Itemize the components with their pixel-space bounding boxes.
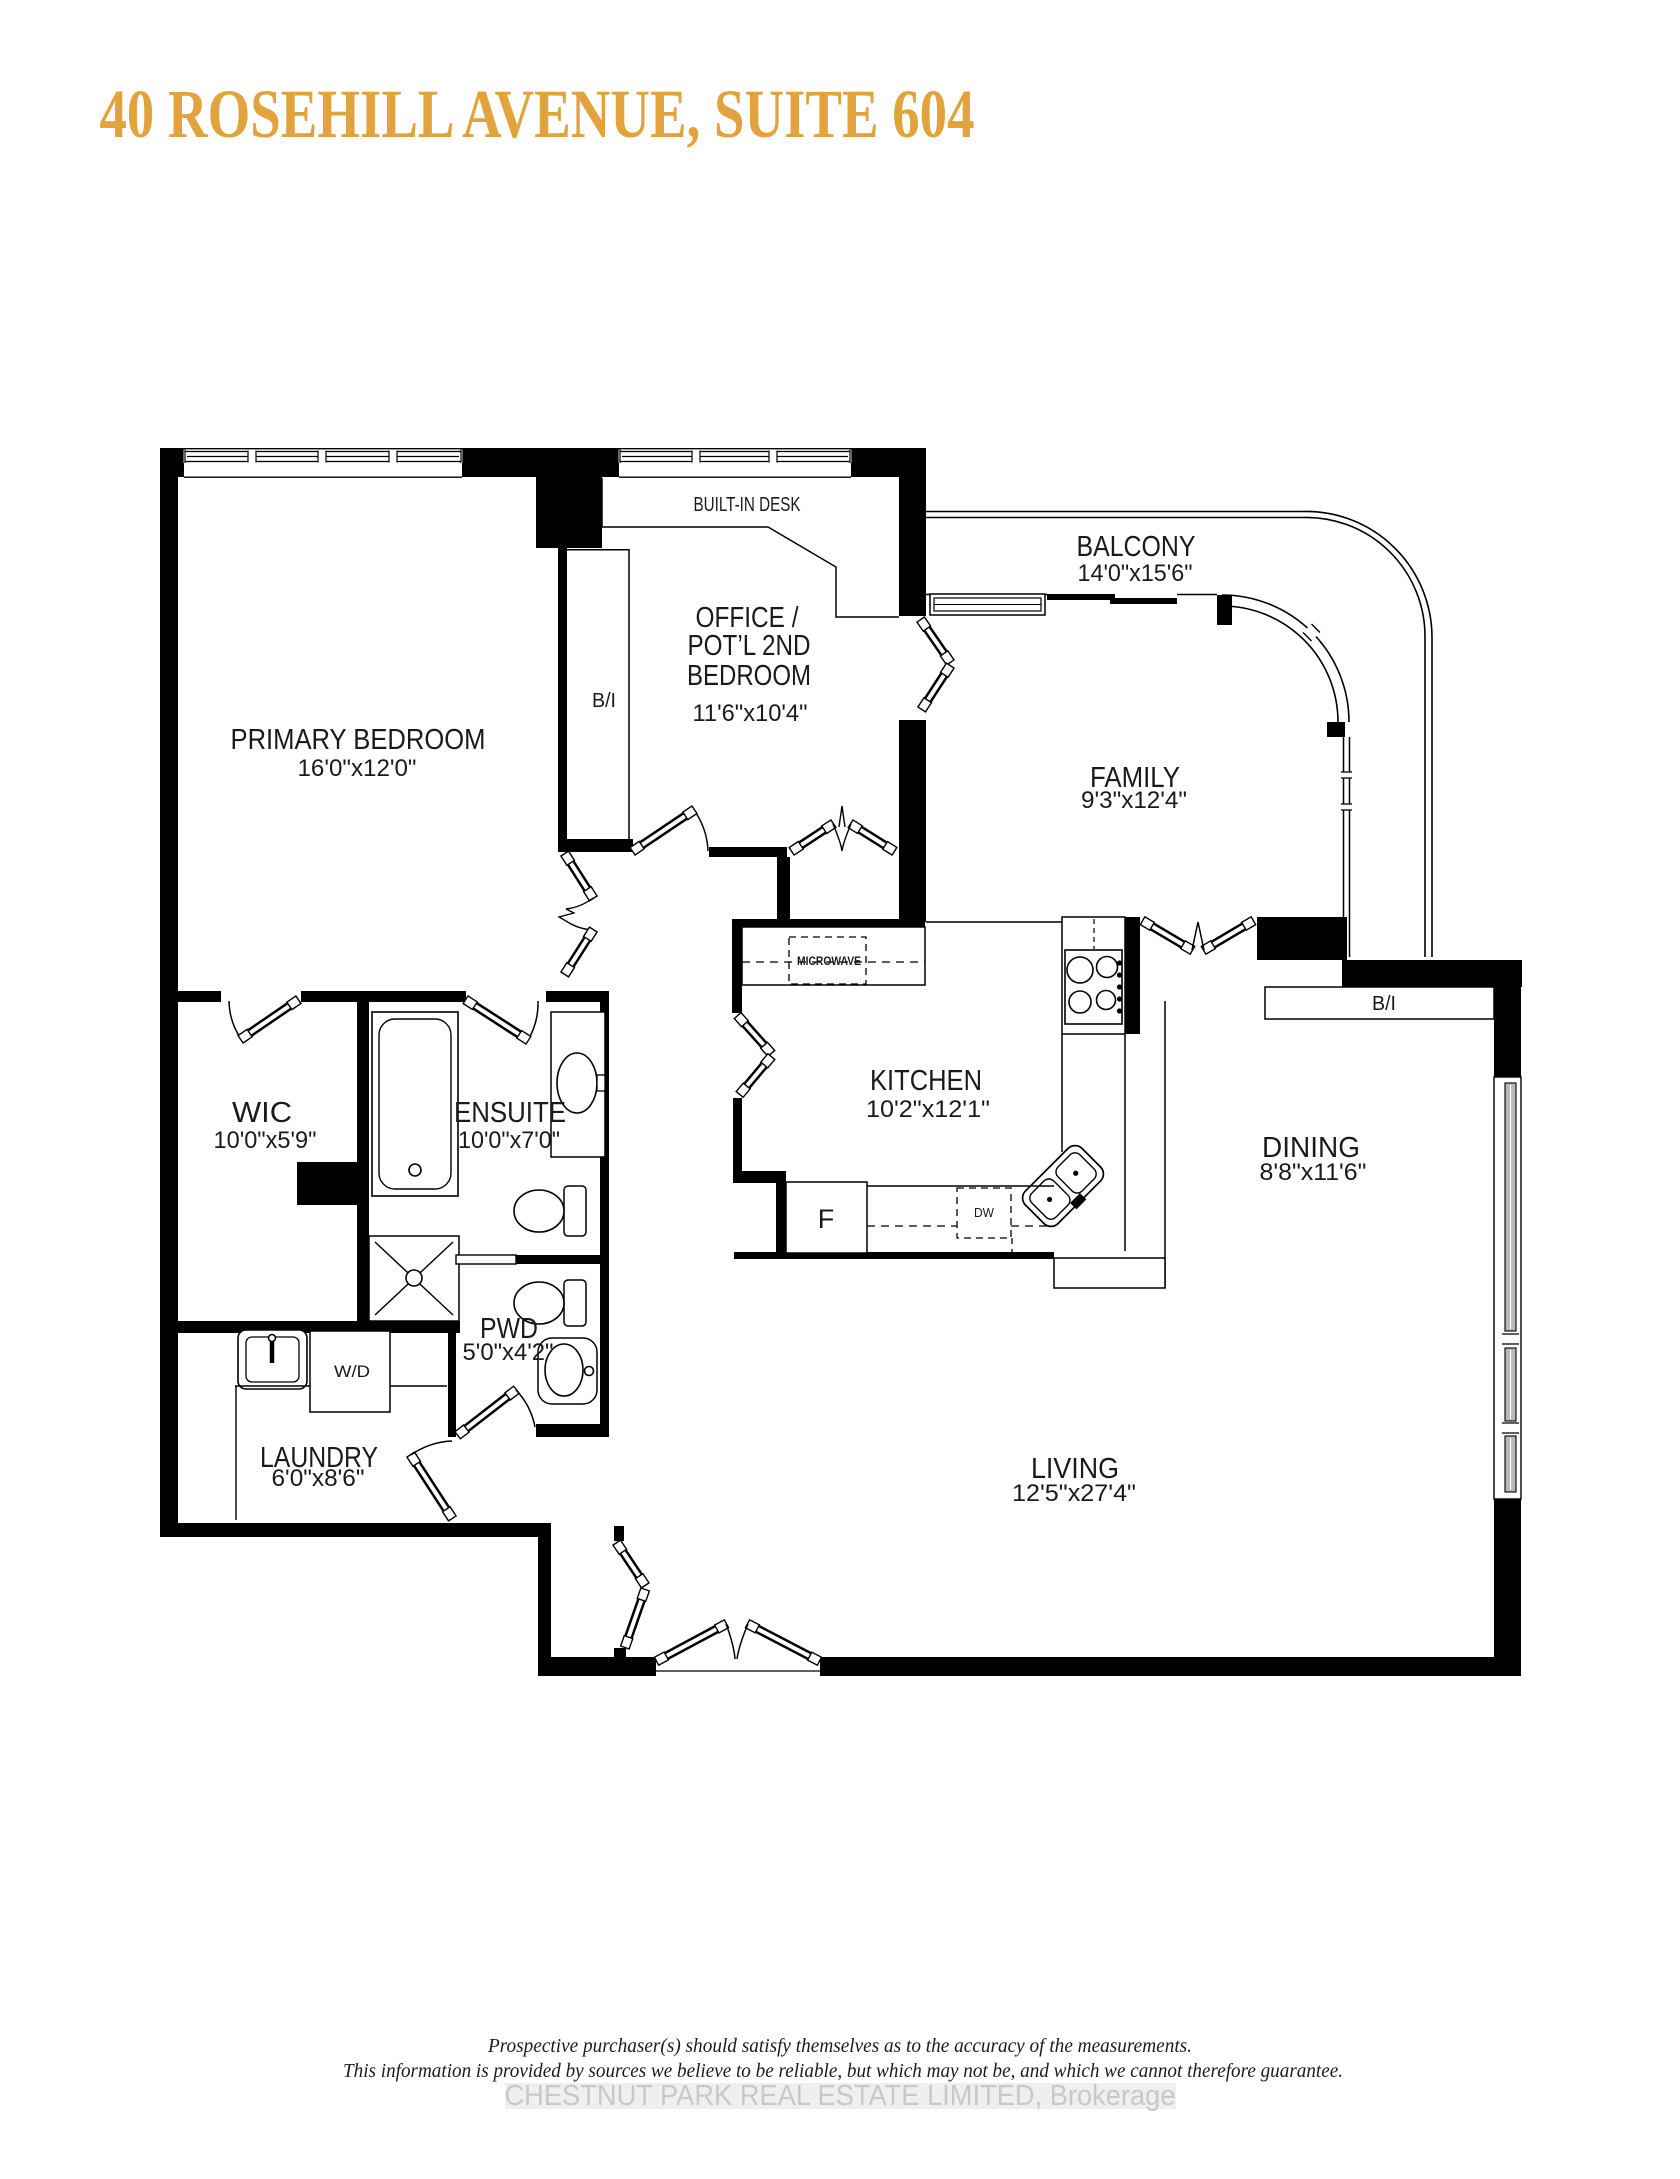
svg-text:W/D: W/D (334, 1362, 370, 1381)
svg-text:ENSUITE: ENSUITE (454, 1097, 566, 1129)
svg-text:6'0"x8'6": 6'0"x8'6" (272, 1465, 365, 1492)
svg-text:BEDROOM: BEDROOM (687, 660, 811, 692)
svg-text:CHESTNUT PARK REAL ESTATE LIMI: CHESTNUT PARK REAL ESTATE LIMITED, Broke… (505, 2080, 1176, 2112)
svg-text:B/I: B/I (592, 690, 616, 712)
svg-text:8'8"x11'6": 8'8"x11'6" (1260, 1159, 1367, 1186)
svg-text:9'3"x12'4": 9'3"x12'4" (1081, 787, 1187, 814)
svg-text:This information is provided b: This information is provided by sources … (343, 2061, 1343, 2082)
svg-text:WIC: WIC (232, 1097, 292, 1129)
svg-text:10'0"x7'0": 10'0"x7'0" (458, 1127, 560, 1154)
svg-text:F: F (818, 1204, 835, 1234)
svg-text:POT’L 2ND: POT’L 2ND (688, 630, 811, 662)
svg-text:Prospective purchaser(s) shoul: Prospective purchaser(s) should satisfy … (487, 2036, 1192, 2057)
svg-text:BUILT-IN DESK: BUILT-IN DESK (694, 494, 801, 516)
svg-text:14'0"x15'6": 14'0"x15'6" (1078, 560, 1193, 587)
svg-text:5'0"x4'2": 5'0"x4'2" (463, 1339, 554, 1366)
svg-text:10'2"x12'1": 10'2"x12'1" (866, 1096, 990, 1123)
svg-text:DW: DW (974, 1205, 995, 1220)
svg-text:40 ROSEHILL AVENUE, SUITE 604: 40 ROSEHILL AVENUE, SUITE 604 (100, 76, 975, 152)
svg-text:BALCONY: BALCONY (1077, 531, 1196, 563)
svg-text:MICROWAVE: MICROWAVE (797, 954, 861, 968)
svg-text:11'6"x10'4": 11'6"x10'4" (693, 700, 808, 727)
svg-text:PRIMARY BEDROOM: PRIMARY BEDROOM (231, 724, 486, 756)
svg-text:12'5"x27'4": 12'5"x27'4" (1012, 1480, 1136, 1507)
svg-text:KITCHEN: KITCHEN (870, 1065, 982, 1097)
svg-text:B/I: B/I (1372, 993, 1396, 1015)
svg-text:10'0"x5'9": 10'0"x5'9" (214, 1127, 317, 1154)
svg-text:16'0"x12'0": 16'0"x12'0" (298, 755, 417, 782)
